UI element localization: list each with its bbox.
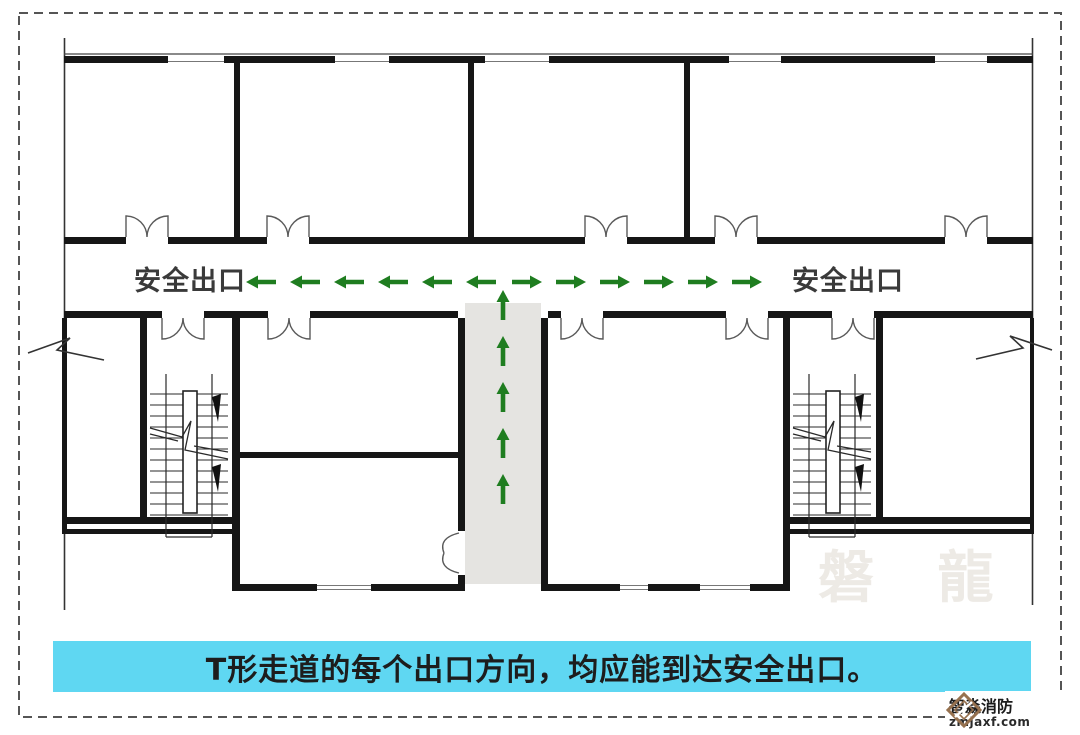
caption-text: T形走道的每个出口方向，均应能到达安全出口。 — [206, 645, 878, 689]
right-arrow-icon — [512, 276, 542, 289]
brand-logo: 智淼消防 zmjaxf.com — [945, 691, 1080, 735]
floor-plan — [0, 0, 1080, 735]
corridor-top-wall — [64, 237, 1033, 244]
left-arrow-icon — [290, 276, 320, 289]
top-wall — [64, 54, 1033, 63]
screenshot-root: 磐 龍 — [0, 0, 1080, 735]
evacuation-arrows-horizontal — [246, 276, 762, 289]
diamond-logo-icon — [945, 691, 983, 729]
exit-label-right: 安全出口 — [783, 267, 913, 297]
corridor-bottom-wall — [64, 311, 1033, 318]
bottom-wall — [232, 584, 790, 591]
caption-banner: T形走道的每个出口方向，均应能到达安全出口。 — [53, 641, 1031, 692]
left-arrow-icon — [422, 276, 452, 289]
left-arrow-icon — [378, 276, 408, 289]
left-arrow-icon — [334, 276, 364, 289]
partition-walls — [62, 62, 1033, 591]
door-swing-icons-top — [126, 216, 987, 237]
staircase-left — [150, 374, 228, 537]
corridor-exit-door-swing-icon — [443, 533, 459, 573]
right-arrow-icon — [600, 276, 630, 289]
right-arrow-icon — [732, 276, 762, 289]
staircase-right — [793, 374, 871, 537]
exit-label-left: 安全出口 — [125, 267, 255, 297]
right-arrow-icon — [644, 276, 674, 289]
right-arrow-icon — [556, 276, 586, 289]
break-mark-right — [976, 336, 1052, 359]
right-arrow-icon — [688, 276, 718, 289]
left-arrow-icon — [466, 276, 496, 289]
